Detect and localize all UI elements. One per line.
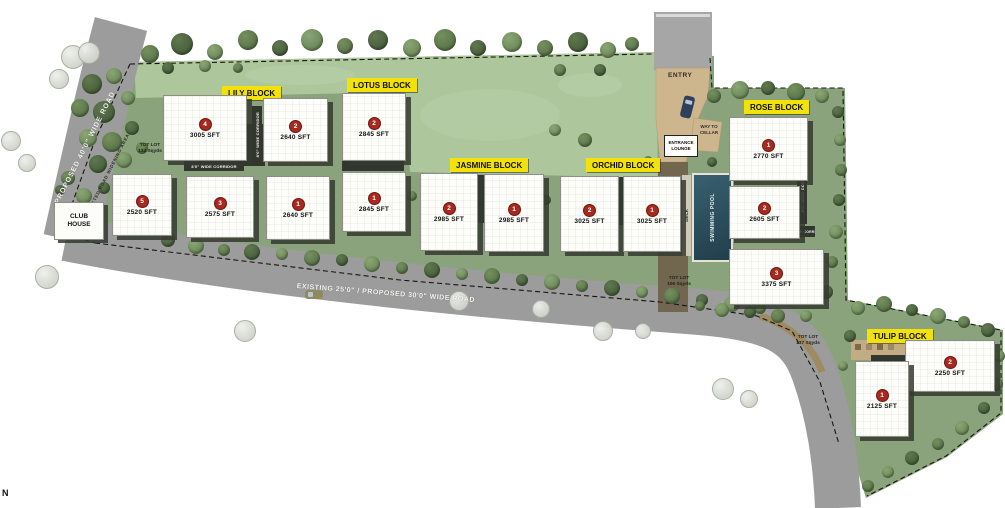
tree-icon	[771, 309, 785, 323]
tree-icon	[600, 42, 616, 58]
swimming-pool: SWIMMING POOL	[692, 173, 733, 262]
tree-icon	[403, 39, 421, 57]
tree-icon	[188, 238, 204, 254]
tree-icon	[838, 361, 848, 371]
unit-area-label: 2125 SFT	[867, 403, 897, 410]
tree-icon	[833, 194, 845, 206]
block-label-orchid: ORCHID BLOCK	[586, 158, 660, 172]
entrance-lounge: ENTRANCE LOUNGE	[664, 135, 698, 157]
car-icon	[305, 290, 323, 299]
tree-icon	[844, 330, 856, 342]
unit-number-badge: 5	[136, 195, 149, 208]
unit-area-label: 2770 SFT	[753, 153, 783, 160]
club-house: CLUB HOUSE	[54, 202, 104, 240]
tree-icon	[238, 30, 258, 50]
tree-icon	[78, 42, 100, 64]
tree-icon	[978, 402, 990, 414]
unit-area-label: 2845 SFT	[359, 206, 389, 213]
building-lily-1: 1 2640 SFT	[266, 176, 330, 240]
tree-icon	[834, 134, 846, 146]
tree-icon	[906, 304, 918, 316]
tree-icon	[695, 301, 705, 311]
tree-icon	[740, 390, 758, 408]
unit-number-badge: 1	[292, 198, 305, 211]
block-label-rose: ROSE BLOCK	[744, 100, 809, 114]
tree-icon	[424, 262, 440, 278]
unit-number-badge: 1	[508, 203, 521, 216]
tree-icon	[434, 29, 456, 51]
tree-icon	[731, 81, 749, 99]
tree-icon	[121, 91, 135, 105]
unit-area-label: 3025 SFT	[574, 218, 604, 225]
tree-icon	[932, 438, 944, 450]
unit-area-label: 3375 SFT	[761, 281, 791, 288]
tree-icon	[554, 64, 566, 76]
tree-icon	[761, 81, 775, 95]
unit-number-badge: 1	[762, 139, 775, 152]
entry-label: ENTRY	[668, 72, 692, 79]
tree-icon	[744, 306, 756, 318]
tree-icon	[364, 256, 380, 272]
unit-area-label: 2985 SFT	[434, 216, 464, 223]
tot-lot-2: TOT LOT 106 Sqyds	[660, 276, 698, 288]
tree-icon	[49, 69, 69, 89]
unit-area-label: 2985 SFT	[499, 217, 529, 224]
tree-icon	[835, 164, 847, 176]
tree-icon	[568, 32, 588, 52]
way-to-cellar-label: WAY TO CELLAR	[696, 124, 722, 135]
building-rose-2: 2 2605 SFT	[729, 186, 800, 239]
unit-area-label: 2640 SFT	[280, 134, 310, 141]
tree-icon	[1, 131, 21, 151]
tree-icon	[594, 64, 606, 76]
tree-icon	[625, 37, 639, 51]
tot-lot-area: 137 Sqyds	[796, 341, 820, 347]
pool-deck: DECK	[682, 175, 691, 256]
tree-icon	[532, 300, 550, 318]
unit-area-label: 2640 SFT	[283, 212, 313, 219]
building-lily-2: 2 2640 SFT	[263, 98, 328, 162]
tot-lot-1: TOT LOT 134 Sqyds	[131, 143, 169, 155]
tree-icon	[407, 191, 417, 201]
building-rose-3: 3 3375 SFT	[729, 249, 824, 305]
tree-icon	[905, 451, 919, 465]
building-lily-5: 5 2520 SFT	[112, 174, 172, 236]
tree-icon	[207, 44, 223, 60]
site-plan: PROPOSED 40'0" WIDE ROAD AFFECTED ROAD W…	[0, 0, 1005, 508]
tree-icon	[82, 74, 102, 94]
tree-icon	[301, 29, 323, 51]
corridor-label: 8'0" WIDE CORRIDOR	[255, 112, 260, 157]
tree-icon	[368, 30, 388, 50]
club-house-label: CLUB HOUSE	[64, 213, 94, 229]
building-lotus-1: 1 2845 SFT	[342, 172, 406, 232]
tree-icon	[544, 274, 560, 290]
tree-icon	[576, 280, 588, 292]
unit-area-label: 2250 SFT	[935, 370, 965, 377]
unit-area-label: 2845 SFT	[359, 131, 389, 138]
tree-icon	[336, 254, 348, 266]
unit-number-badge: 4	[199, 118, 212, 131]
building-lotus-2: 2 2845 SFT	[342, 93, 406, 161]
tree-icon	[35, 265, 59, 289]
tree-icon	[800, 310, 812, 322]
tree-icon	[244, 244, 260, 260]
corridor-label: 8'0" WIDE CORRIDOR	[191, 164, 236, 169]
unit-number-badge: 1	[646, 204, 659, 217]
building-rose-1: 1 2770 SFT	[729, 117, 808, 181]
building-orchid-1: 1 3025 SFT	[623, 176, 681, 252]
tree-icon	[930, 308, 946, 324]
tree-icon	[715, 303, 729, 317]
tree-icon	[89, 155, 107, 173]
tree-icon	[272, 40, 288, 56]
unit-number-badge: 3	[770, 267, 783, 280]
building-tulip-1: 1 2125 SFT	[855, 361, 909, 437]
unit-number-badge: 2	[758, 202, 771, 215]
north-label: N	[2, 488, 9, 498]
tree-icon	[516, 274, 528, 286]
tree-icon	[829, 225, 843, 239]
tot-lot-area: 106 Sqyds	[667, 282, 691, 288]
tree-icon	[549, 124, 561, 136]
unit-area-label: 2575 SFT	[205, 211, 235, 218]
tree-icon	[484, 268, 500, 284]
unit-area-label: 3005 SFT	[190, 132, 220, 139]
unit-number-badge: 1	[876, 389, 889, 402]
tree-icon	[470, 40, 486, 56]
swimming-pool-label: SWIMMING POOL	[710, 193, 716, 242]
tree-icon	[955, 421, 969, 435]
tree-icon	[18, 154, 36, 172]
tree-icon	[71, 99, 89, 117]
tree-icon	[851, 301, 865, 315]
tree-icon	[707, 89, 721, 103]
unit-number-badge: 2	[443, 202, 456, 215]
tree-icon	[981, 323, 995, 337]
tot-lot-area: 134 Sqyds	[138, 149, 162, 155]
tree-icon	[141, 45, 159, 63]
block-label-jasmine: JASMINE BLOCK	[450, 158, 528, 172]
building-tulip-2: 2 2250 SFT	[905, 340, 995, 392]
tree-icon	[876, 296, 892, 312]
unit-area-label: 2520 SFT	[127, 209, 157, 216]
tree-icon	[162, 62, 174, 74]
tree-icon	[707, 157, 717, 167]
tree-icon	[635, 323, 651, 339]
tree-icon	[712, 378, 734, 400]
building-jasmine-1: 1 2985 SFT	[484, 174, 544, 252]
entrance-lounge-label: ENTRANCE LOUNGE	[667, 140, 695, 151]
lily-corridor-vertical: 8'0" WIDE CORRIDOR	[252, 106, 262, 164]
lotus-stair-core	[342, 160, 404, 171]
tree-icon	[233, 63, 243, 73]
unit-number-badge: 2	[944, 356, 957, 369]
tree-icon	[862, 480, 874, 492]
unit-number-badge: 3	[214, 197, 227, 210]
tree-icon	[882, 466, 894, 478]
lily-corridor-horizontal: 8'0" WIDE CORRIDOR	[184, 161, 244, 171]
building-lily-4: 4 3005 SFT	[163, 95, 247, 161]
tree-icon	[578, 133, 592, 147]
tree-icon	[832, 106, 844, 118]
tree-icon	[276, 248, 288, 260]
block-label-lotus: LOTUS BLOCK	[347, 78, 417, 92]
tree-icon	[106, 68, 122, 84]
tree-icon	[456, 268, 468, 280]
tree-icon	[826, 256, 838, 268]
tree-icon	[636, 286, 648, 298]
unit-number-badge: 2	[368, 117, 381, 130]
tree-icon	[604, 280, 620, 296]
tree-icon	[787, 83, 805, 101]
unit-number-badge: 2	[583, 204, 596, 217]
tree-icon	[396, 262, 408, 274]
tree-icon	[171, 33, 193, 55]
tree-icon	[337, 38, 353, 54]
building-lily-3: 3 2575 SFT	[186, 176, 254, 238]
building-orchid-2: 2 3025 SFT	[560, 176, 619, 252]
tree-icon	[199, 60, 211, 72]
unit-number-badge: 2	[289, 120, 302, 133]
tree-icon	[234, 320, 256, 342]
tree-icon	[304, 250, 320, 266]
tree-icon	[593, 321, 613, 341]
tree-icon	[815, 89, 829, 103]
tree-icon	[502, 32, 522, 52]
unit-area-label: 3025 SFT	[637, 218, 667, 225]
building-jasmine-2: 2 2985 SFT	[420, 173, 478, 251]
tot-lot-3: TOT LOT 137 Sqyds	[789, 335, 827, 347]
tree-icon	[958, 316, 970, 328]
tree-icon	[664, 288, 680, 304]
tree-icon	[537, 40, 553, 56]
deck-label: DECK	[684, 209, 689, 222]
tree-icon	[218, 244, 230, 256]
unit-number-badge: 1	[368, 192, 381, 205]
unit-area-label: 2605 SFT	[749, 216, 779, 223]
